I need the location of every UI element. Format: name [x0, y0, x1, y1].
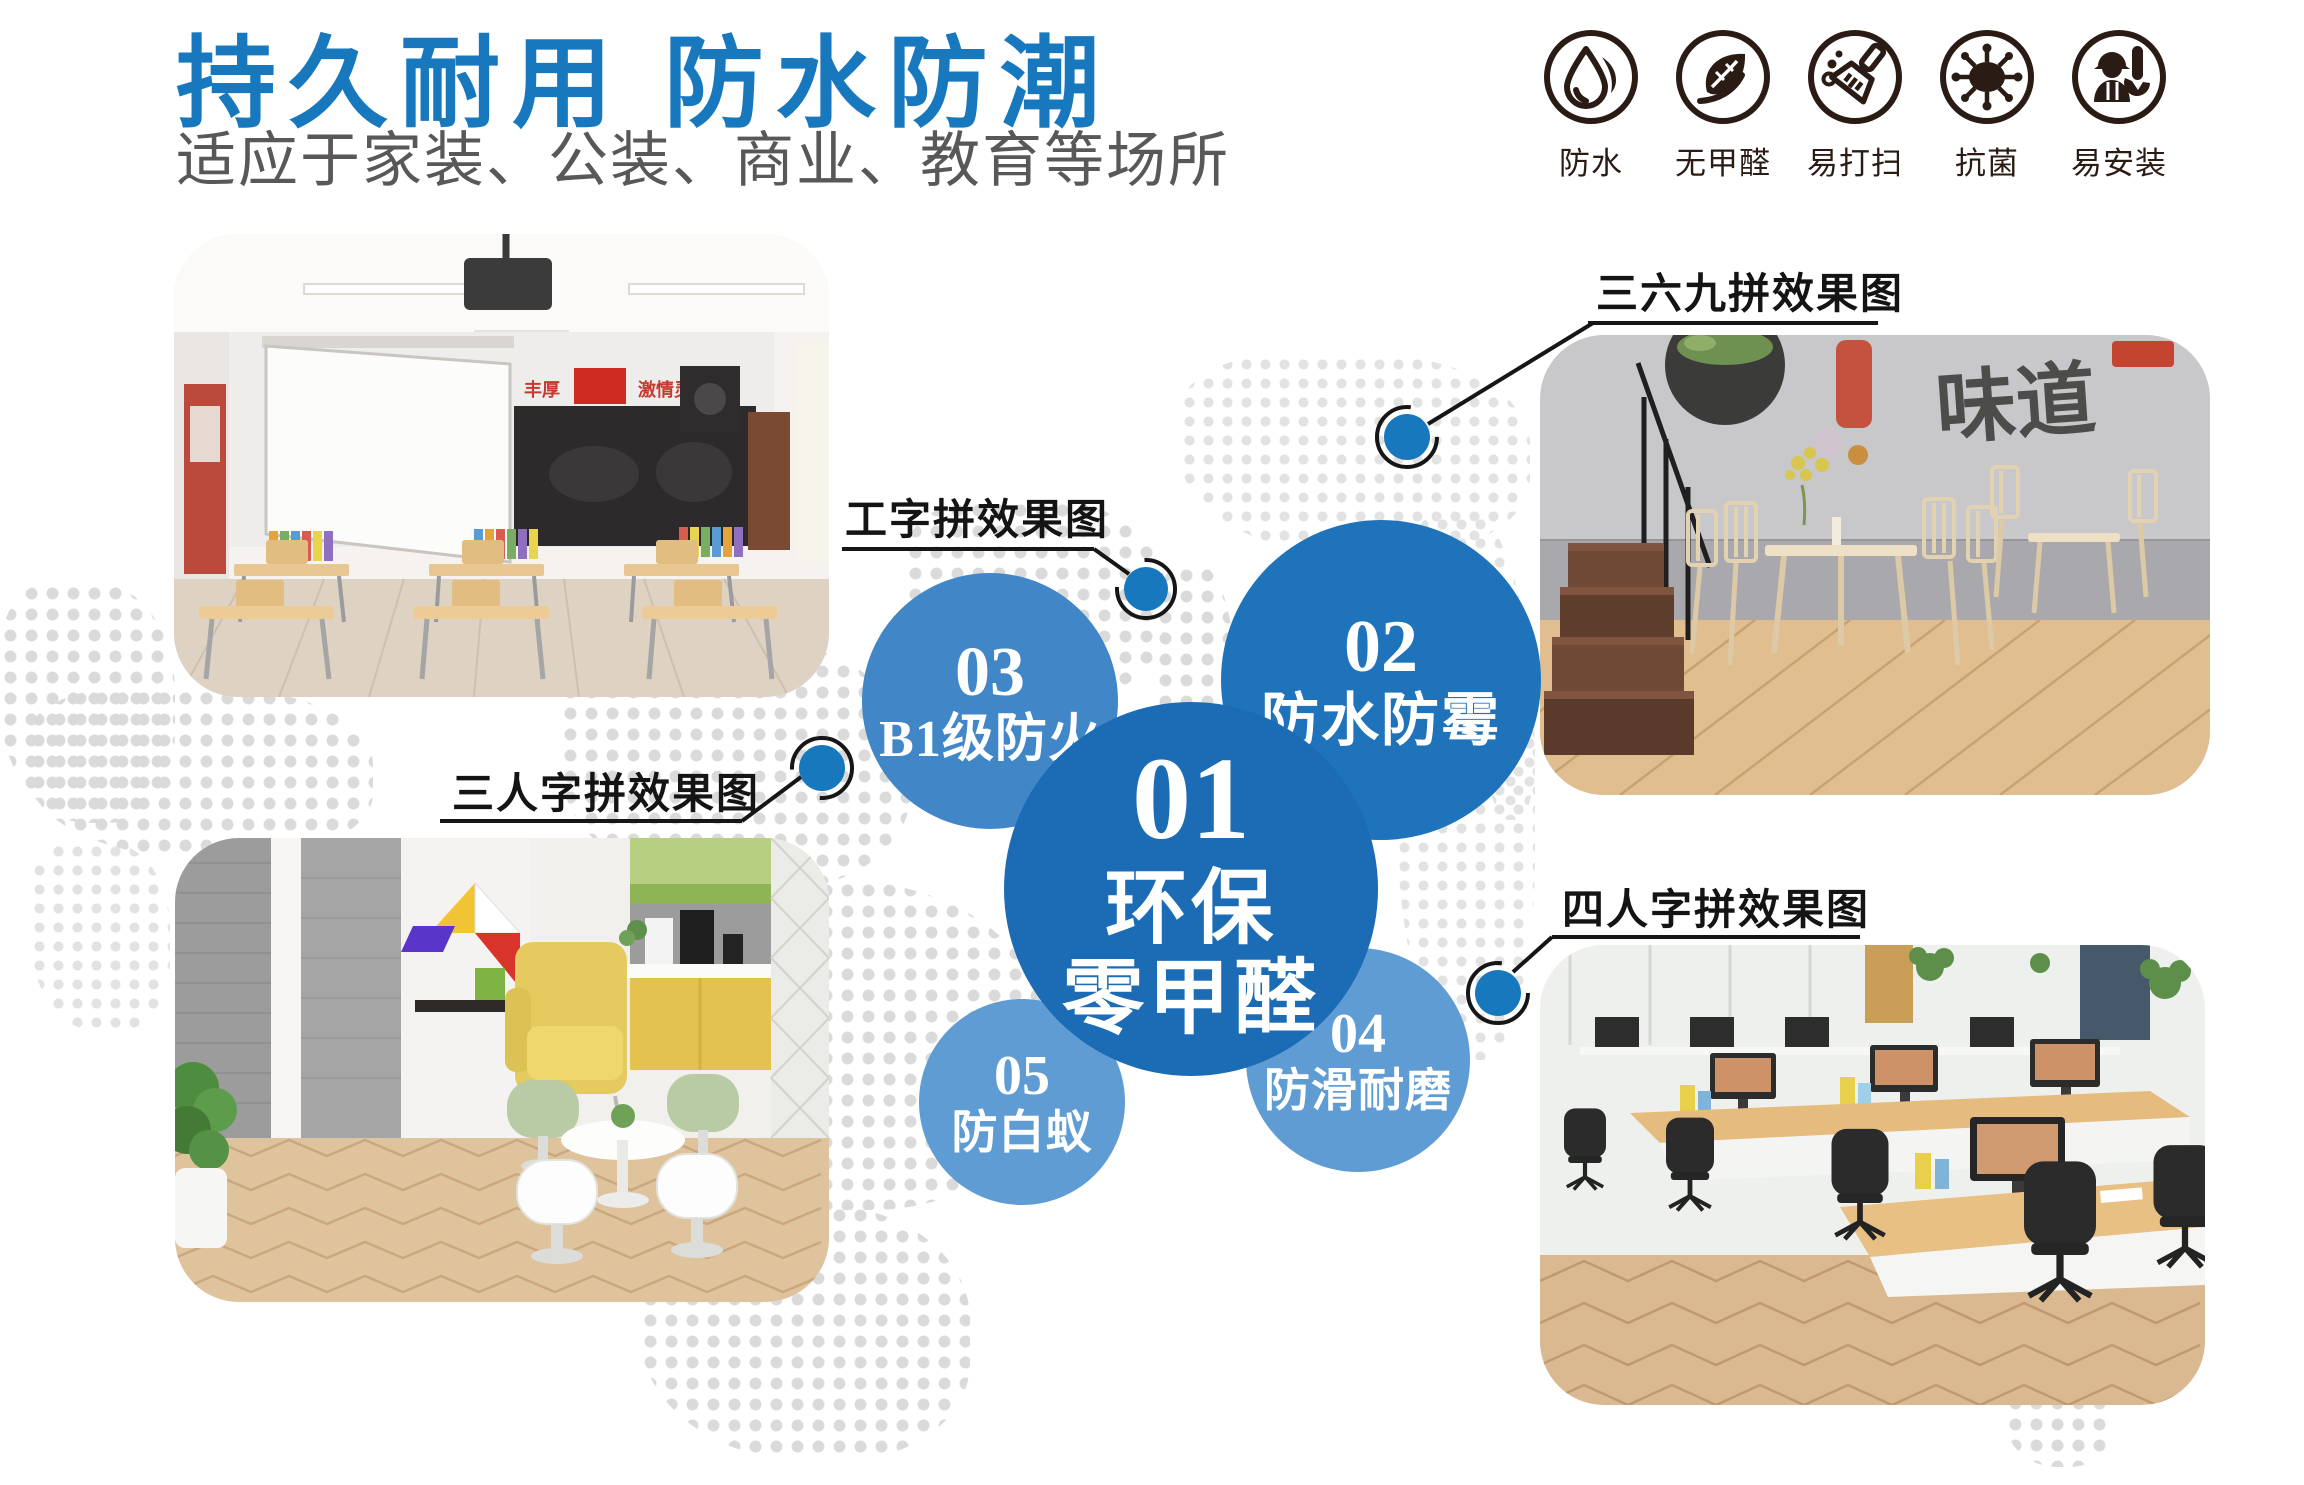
mural-calligraphy: 味道	[1933, 356, 2099, 455]
callout-label-i-pattern: 工字拼效果图	[845, 486, 1109, 547]
badge-waterproof: 防水	[1525, 28, 1657, 183]
badge-label: 防水	[1559, 138, 1623, 183]
bubble-01-eco-zero-formaldehyde: 01 环保 零甲醛	[1004, 702, 1378, 1076]
photo-classroom: 丰厚 激情灵动	[174, 234, 829, 697]
feature-badges: 防水 无甲醛 易	[1525, 28, 2185, 183]
badge-no-formaldehyde: 无甲醛	[1657, 28, 1789, 183]
dots-map-fragment	[30, 842, 170, 1032]
bubble-03-number: 03	[955, 634, 1025, 711]
photo-restaurant: 味道	[1540, 335, 2210, 795]
broom-icon	[1806, 28, 1904, 126]
dots-map-fragment	[28, 688, 373, 858]
callout-label-4-herringbone: 四人字拼效果图	[1562, 876, 1870, 937]
bubble-01-line2: 零甲醛	[1062, 954, 1320, 1044]
bubble-04-number: 04	[1330, 1004, 1386, 1066]
bubble-02-number: 02	[1344, 607, 1418, 688]
badge-label: 无甲醛	[1675, 138, 1771, 183]
page-subtitle: 适应于家装、公装、商业、教育等场所	[176, 112, 1230, 199]
bubble-04-label: 防滑耐磨	[1264, 1066, 1452, 1117]
classroom-scene-illustration: 丰厚 激情灵动	[174, 234, 829, 697]
office-scene-illustration	[1540, 945, 2205, 1405]
door	[748, 412, 790, 550]
bubble-01-line1: 环保	[1105, 864, 1277, 954]
bubble-05-label: 防白蚁	[952, 1108, 1093, 1159]
badge-easy-clean: 易打扫	[1789, 28, 1921, 183]
lounge-scene-illustration	[175, 838, 829, 1302]
worker-wrench-icon	[2070, 28, 2168, 126]
restaurant-scene-illustration: 味道	[1540, 335, 2210, 795]
projection-screen	[266, 346, 510, 562]
flag	[574, 368, 626, 404]
bubble-01-number: 01	[1132, 734, 1250, 864]
badge-easy-install: 易安装	[2053, 28, 2185, 183]
classroom-banner-text-left: 丰厚	[524, 379, 560, 400]
badge-label: 易安装	[2071, 138, 2167, 183]
badge-label: 抗菌	[1955, 138, 2019, 183]
leaf-icon	[1674, 28, 1772, 126]
badge-label: 易打扫	[1807, 138, 1903, 183]
waterdrop-icon	[1542, 28, 1640, 126]
bubble-05-number: 05	[994, 1046, 1050, 1108]
callout-label-369-pattern: 三六九拼效果图	[1596, 260, 1904, 321]
photo-lounge	[175, 838, 829, 1302]
badge-antibacterial: 抗菌	[1921, 28, 2053, 183]
photo-office	[1540, 945, 2205, 1405]
callout-label-3-herringbone: 三人字拼效果图	[452, 760, 760, 821]
poster-page: 持久耐用 防水防潮 适应于家装、公装、商业、教育等场所 防水 无甲醛	[0, 0, 2304, 1485]
virus-icon	[1938, 28, 2036, 126]
mesh-partition	[771, 838, 829, 1148]
